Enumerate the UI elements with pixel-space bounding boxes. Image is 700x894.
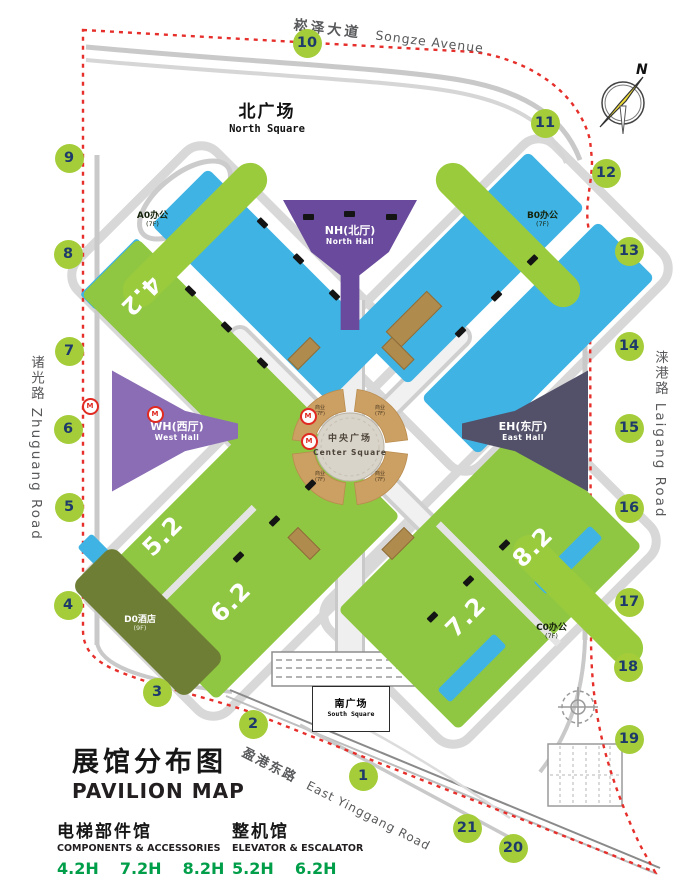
gate-marker-10: 10	[293, 29, 322, 58]
entrance-icon	[303, 214, 314, 220]
zhuguang-road-label: 诸光路 Zhuguang Road	[26, 355, 46, 655]
gate-marker-13: 13	[615, 237, 644, 266]
gate-marker-7: 7	[55, 337, 84, 366]
gate-marker-15: 15	[615, 414, 644, 443]
gate-marker-21: 21	[453, 814, 482, 843]
commercial-segment-label: 商业(7F)	[365, 406, 395, 417]
pavilion-map: N 4.2 5.2 6.2 7.2 8.2 NH(北厅) North Hall …	[0, 0, 700, 894]
gate-marker-9: 9	[55, 144, 84, 173]
gate-marker-17: 17	[615, 588, 644, 617]
gate-marker-20: 20	[499, 834, 528, 863]
gate-marker-18: 18	[614, 653, 643, 682]
gate-marker-16: 16	[615, 494, 644, 523]
gate-marker-3: 3	[143, 678, 172, 707]
legend-hall-5-2h: 5.2H	[232, 859, 274, 878]
legend-hall-8-2h: 8.2H	[183, 859, 225, 878]
gate-marker-1: 1	[349, 762, 378, 791]
metro-station-icon: M	[301, 433, 318, 450]
gate-marker-19: 19	[615, 725, 644, 754]
gate-marker-5: 5	[55, 493, 84, 522]
legend-hall-6-2h: 6.2H	[295, 859, 337, 878]
laigang-road-label: 涞港路 Laigang Road	[650, 350, 670, 650]
gate-marker-2: 2	[239, 710, 268, 739]
building-a0-label: A0办公(7F)	[125, 212, 180, 228]
commercial-segment-label: 商业(7F)	[365, 472, 395, 483]
entrance-icon	[386, 214, 397, 220]
building-b0-label: B0办公(7F)	[515, 212, 570, 228]
commercial-segment-label: 商业(7F)	[305, 472, 335, 483]
map-title: 展馆分布图 PAVILION MAP	[72, 740, 245, 803]
gate-marker-4: 4	[54, 591, 83, 620]
metro-station-icon: M	[147, 406, 164, 423]
legend-hall-4-2h: 4.2H	[57, 859, 99, 878]
building-c0-label: C0办公(7F)	[524, 624, 579, 640]
north-hall-label: NH(北厅) North Hall	[290, 224, 410, 246]
gate-marker-8: 8	[54, 240, 83, 269]
legend-group-components: 电梯部件馆 COMPONENTS & ACCESSORIES 4.2H 7.2H…	[57, 817, 240, 878]
building-d0-label: D0酒店 (9F)	[105, 616, 175, 632]
west-hall-label: WH(西厅) West Hall	[122, 420, 232, 442]
metro-station-icon: M	[300, 408, 317, 425]
legend-hall-7-2h: 7.2H	[120, 859, 162, 878]
south-square-box: 南广场 South Square	[312, 686, 390, 732]
north-square-label: 北广场 North Square	[217, 103, 317, 135]
legend-group-elevator: 整机馆 ELEVATOR & ESCALATOR 5.2H 6.2H	[232, 817, 363, 878]
east-hall-label: EH(东厅) East Hall	[468, 420, 578, 442]
gate-marker-14: 14	[615, 332, 644, 361]
entrance-icon	[344, 211, 355, 217]
gate-marker-6: 6	[54, 415, 83, 444]
gate-marker-12: 12	[592, 159, 621, 188]
metro-station-icon: M	[82, 398, 99, 415]
gate-marker-11: 11	[531, 109, 560, 138]
